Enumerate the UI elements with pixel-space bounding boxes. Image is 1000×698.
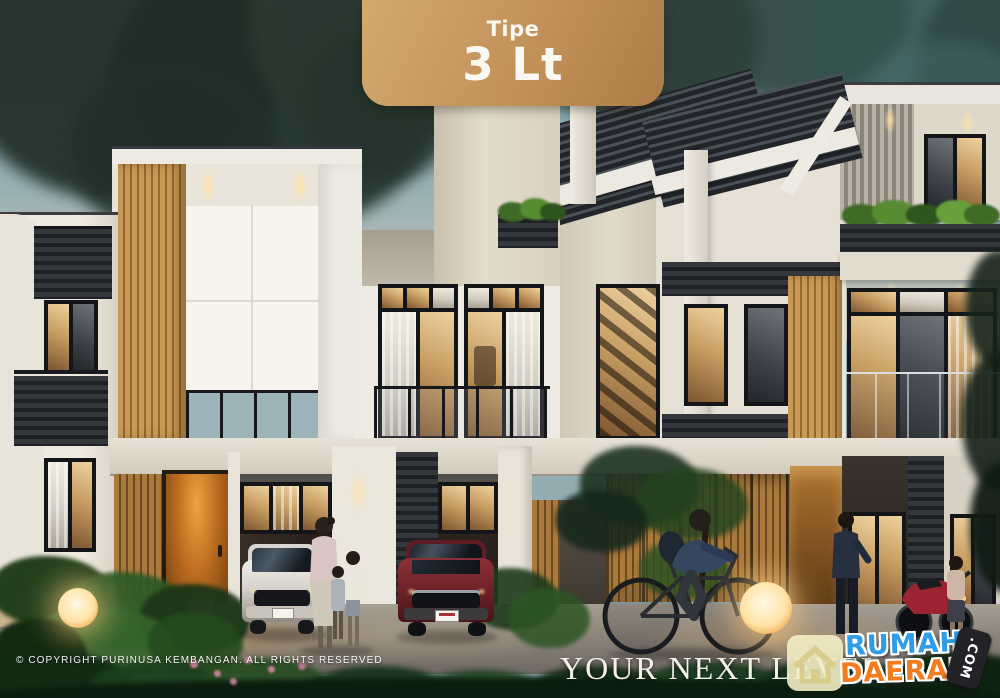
wheel — [250, 620, 266, 634]
parapet-stub — [570, 104, 596, 204]
window-pane — [948, 292, 993, 312]
window-pane — [900, 292, 945, 312]
panel-seam — [186, 300, 318, 302]
window-pane — [600, 288, 656, 436]
planter-box — [498, 214, 558, 248]
person-head — [949, 556, 963, 570]
planter-box-d2 — [840, 224, 1000, 254]
rider-head — [689, 509, 711, 531]
unit-b-slat-band — [118, 164, 186, 440]
woman-skirt — [947, 600, 965, 622]
home-icon — [786, 634, 844, 692]
glass-rail-d2 — [843, 372, 1000, 442]
planter-slab-d2 — [840, 252, 1000, 280]
downlight-glow — [200, 168, 216, 204]
stair-window — [596, 284, 660, 440]
furniture-silhouette — [474, 346, 496, 386]
window-pane — [928, 138, 953, 212]
window-pane — [273, 486, 298, 530]
license-plate — [435, 610, 459, 622]
wooden-door-b — [166, 474, 228, 614]
flower-dot — [230, 678, 237, 685]
license-plate — [272, 608, 294, 619]
suv-grille — [412, 590, 480, 608]
window-pane — [442, 486, 466, 530]
sphere-lamp — [740, 582, 792, 634]
balcony-rail-a — [14, 370, 108, 374]
window-pane — [957, 138, 982, 212]
type-badge: Tipe 3 Lt — [362, 0, 664, 106]
person-head — [332, 566, 344, 578]
rider-legs — [680, 574, 702, 614]
ground-slat-b — [114, 474, 162, 618]
balcony-rail-c — [374, 386, 550, 443]
person-head — [346, 551, 360, 565]
window-pane — [244, 486, 269, 530]
downlight-glow — [962, 108, 974, 136]
leg — [318, 626, 323, 652]
window-pane — [493, 288, 514, 308]
leg — [355, 616, 359, 646]
woman-top — [947, 570, 965, 600]
child-shorts — [346, 600, 360, 616]
leg — [836, 578, 845, 634]
window-3f-right — [924, 134, 986, 216]
render-canvas: © COPYRIGHT PURINUSA KEMBANGAN. ALL RIGH… — [0, 0, 1000, 698]
suv-windshield-lower — [412, 560, 480, 574]
window-a-upper — [44, 300, 98, 374]
sphere-lamp — [58, 588, 98, 628]
wheel — [408, 622, 426, 636]
window-a-lower — [44, 458, 96, 552]
ground-pillar-c — [498, 446, 532, 618]
downlight-glow — [884, 106, 896, 134]
ground-slat-c — [532, 500, 560, 618]
wheel — [468, 622, 486, 636]
maroon-suv — [398, 540, 494, 636]
foliage-bush — [420, 670, 550, 698]
headlight — [407, 588, 416, 595]
d1-slat-column — [788, 276, 842, 446]
mother-top — [310, 536, 338, 584]
stone-fence — [34, 226, 112, 299]
window-pane — [48, 304, 69, 370]
window-pane — [382, 288, 403, 308]
wall-light-glow — [348, 470, 368, 514]
person-head — [838, 512, 854, 528]
window-d1-left — [684, 304, 728, 406]
garage-post — [228, 452, 240, 618]
child-shirt — [345, 566, 361, 600]
leg — [333, 611, 337, 639]
man-torso — [832, 531, 860, 578]
curtain — [273, 486, 298, 530]
logo-tld-text: .COM — [956, 636, 982, 681]
badge-line2: 3 Lt — [462, 41, 563, 88]
downlight-glow — [292, 168, 308, 204]
leg — [339, 611, 343, 639]
home-icon-door — [811, 669, 820, 681]
curtain — [48, 462, 68, 548]
hair-bun — [327, 517, 335, 525]
child-wrap — [331, 579, 345, 611]
window-pane — [468, 288, 489, 308]
door-handle — [218, 545, 222, 557]
window-pane — [688, 308, 724, 402]
panel-seam — [251, 206, 253, 392]
family-group — [298, 514, 374, 656]
balcony-panel-a — [14, 376, 108, 446]
headlight — [249, 588, 257, 594]
garage-transom-2 — [438, 482, 498, 534]
window-d1-right — [744, 304, 788, 406]
headlight — [477, 588, 486, 595]
window-pane — [470, 486, 494, 530]
leg — [849, 578, 858, 634]
window-pane — [72, 462, 92, 548]
window-pane — [519, 288, 540, 308]
balcony-rail-b — [186, 390, 318, 443]
window-pane — [851, 292, 896, 312]
leg — [327, 626, 332, 652]
window-pane — [73, 304, 94, 370]
window-pane — [748, 308, 784, 402]
leg — [348, 616, 352, 646]
window-pane — [48, 462, 68, 548]
cyclist — [596, 486, 778, 658]
window-pane — [407, 288, 428, 308]
window-pane — [433, 288, 454, 308]
stair-silhouette — [600, 288, 656, 436]
copyright-text: © COPYRIGHT PURINUSA KEMBANGAN. ALL RIGH… — [16, 655, 383, 666]
man-at-door — [824, 508, 872, 648]
